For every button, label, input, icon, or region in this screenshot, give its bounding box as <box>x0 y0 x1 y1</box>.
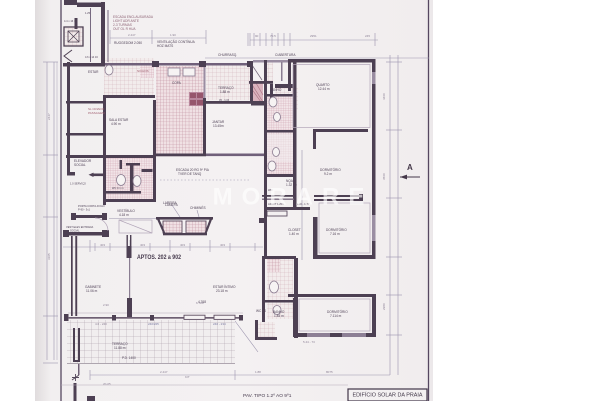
svg-text:C/ABERTURA: C/ABERTURA <box>275 53 296 57</box>
svg-text:2.447: 2.447 <box>128 33 136 37</box>
svg-text:P-90 - 3x1: P-90 - 3x1 <box>78 208 91 212</box>
svg-text:ESTAR: ESTAR <box>88 70 99 74</box>
svg-text:7.114 m: 7.114 m <box>330 314 342 318</box>
svg-text:KIT: KIT <box>185 375 190 379</box>
svg-text:2980: 2980 <box>382 303 386 310</box>
svg-text:45 - 1.04: 45 - 1.04 <box>219 98 230 102</box>
svg-text:BANHO: BANHO <box>270 88 282 92</box>
svg-text:MORARE: MORARE <box>213 184 374 211</box>
svg-text:4.6 - 240: 4.6 - 240 <box>95 322 107 326</box>
svg-text:23.18 m: 23.18 m <box>216 289 228 293</box>
svg-text:7.16 m: 7.16 m <box>330 232 340 236</box>
svg-text:CHIMINÉS: CHIMINÉS <box>190 205 206 210</box>
svg-text:403: 403 <box>140 243 145 247</box>
svg-text:APTOS. 202 a 902: APTOS. 202 a 902 <box>137 255 182 261</box>
svg-text:70.5: 70.5 <box>270 34 276 38</box>
svg-text:13.45m: 13.45m <box>213 124 224 128</box>
svg-text:A: A <box>407 163 413 172</box>
svg-text:3560: 3560 <box>382 173 386 180</box>
svg-text:8075: 8075 <box>326 370 333 374</box>
svg-text:4.6 x 14 16: 4.6 x 14 16 <box>85 55 98 59</box>
svg-text:RUGGEDOM 2.050: RUGGEDOM 2.050 <box>114 41 142 45</box>
svg-text:OUT OL R HUA: OUT OL R HUA <box>113 27 136 31</box>
svg-text:1.88 m: 1.88 m <box>220 90 230 94</box>
svg-text:403: 403 <box>220 243 225 247</box>
svg-text:PASSAGEM: PASSAGEM <box>88 111 105 115</box>
svg-text:5.44 - 73: 5.44 - 73 <box>303 340 315 344</box>
svg-text:240 - 234: 240 - 234 <box>213 322 226 326</box>
svg-text:1.88: 1.88 <box>255 370 261 374</box>
svg-text:1.48 m: 1.48 m <box>274 314 284 318</box>
svg-text:4.4 x 16 14: 4.4 x 16 14 <box>64 19 77 23</box>
svg-text:NICHOS: NICHOS <box>137 69 149 73</box>
svg-text:WC - 4: WC - 4 <box>256 309 266 313</box>
svg-text:240/225: 240/225 <box>148 322 159 326</box>
svg-text:2951: 2951 <box>310 34 317 38</box>
svg-text:CHURRASQ.: CHURRASQ. <box>218 53 237 57</box>
svg-text:2.447: 2.447 <box>160 370 168 374</box>
svg-text:3105: 3105 <box>47 253 51 260</box>
svg-text:TVER DE TANQ: TVER DE TANQ <box>178 172 202 176</box>
svg-text:PORTA CORTA-FOGO: PORTA CORTA-FOGO <box>78 204 105 208</box>
svg-text:12.44 m: 12.44 m <box>318 87 330 91</box>
svg-text:WC 0.1 m: WC 0.1 m <box>112 186 124 190</box>
svg-text:403: 403 <box>100 243 105 247</box>
svg-text:245: 245 <box>365 34 370 38</box>
svg-text:403: 403 <box>180 243 185 247</box>
svg-text:1.0 SERVIÇO: 1.0 SERVIÇO <box>70 182 86 186</box>
svg-text:2.90: 2.90 <box>103 303 109 307</box>
svg-text:11.88 m²: 11.88 m² <box>114 346 126 350</box>
svg-text:SOCIAL: SOCIAL <box>74 163 86 167</box>
svg-text:6.708: 6.708 <box>196 301 204 305</box>
svg-text:HOZ MATS: HOZ MATS <box>157 44 173 48</box>
svg-text:P.D. 1400: P.D. 1400 <box>122 356 136 360</box>
svg-text:2447: 2447 <box>47 113 51 120</box>
svg-text:20-05: 20-05 <box>103 382 111 386</box>
svg-text:VEST ELEV ENTRADA: VEST ELEV ENTRADA <box>66 225 93 229</box>
svg-text:9.2 m: 9.2 m <box>324 172 332 176</box>
svg-text:4460: 4460 <box>382 93 386 100</box>
svg-text:1.25: 1.25 <box>85 11 91 15</box>
svg-text:1.40 m: 1.40 m <box>289 232 299 236</box>
svg-text:EDIFÍCIO SOLAR DA PRAIA: EDIFÍCIO SOLAR DA PRAIA <box>353 392 424 399</box>
svg-text:90: 90 <box>255 34 259 38</box>
svg-text:4.18 m: 4.18 m <box>119 213 129 217</box>
svg-text:PAV. TIPO 1.2º AO 9º1: PAV. TIPO 1.2º AO 9º1 <box>243 393 292 399</box>
svg-text:4.90 m: 4.90 m <box>111 122 121 126</box>
svg-text:COPA: COPA <box>172 81 182 85</box>
svg-text:LAMEPA: LAMEPA <box>165 203 179 207</box>
svg-text:1.90: 1.90 <box>170 33 176 37</box>
svg-text:11.06 m: 11.06 m <box>86 289 98 293</box>
svg-text:SOCIAL: SOCIAL <box>70 229 80 233</box>
